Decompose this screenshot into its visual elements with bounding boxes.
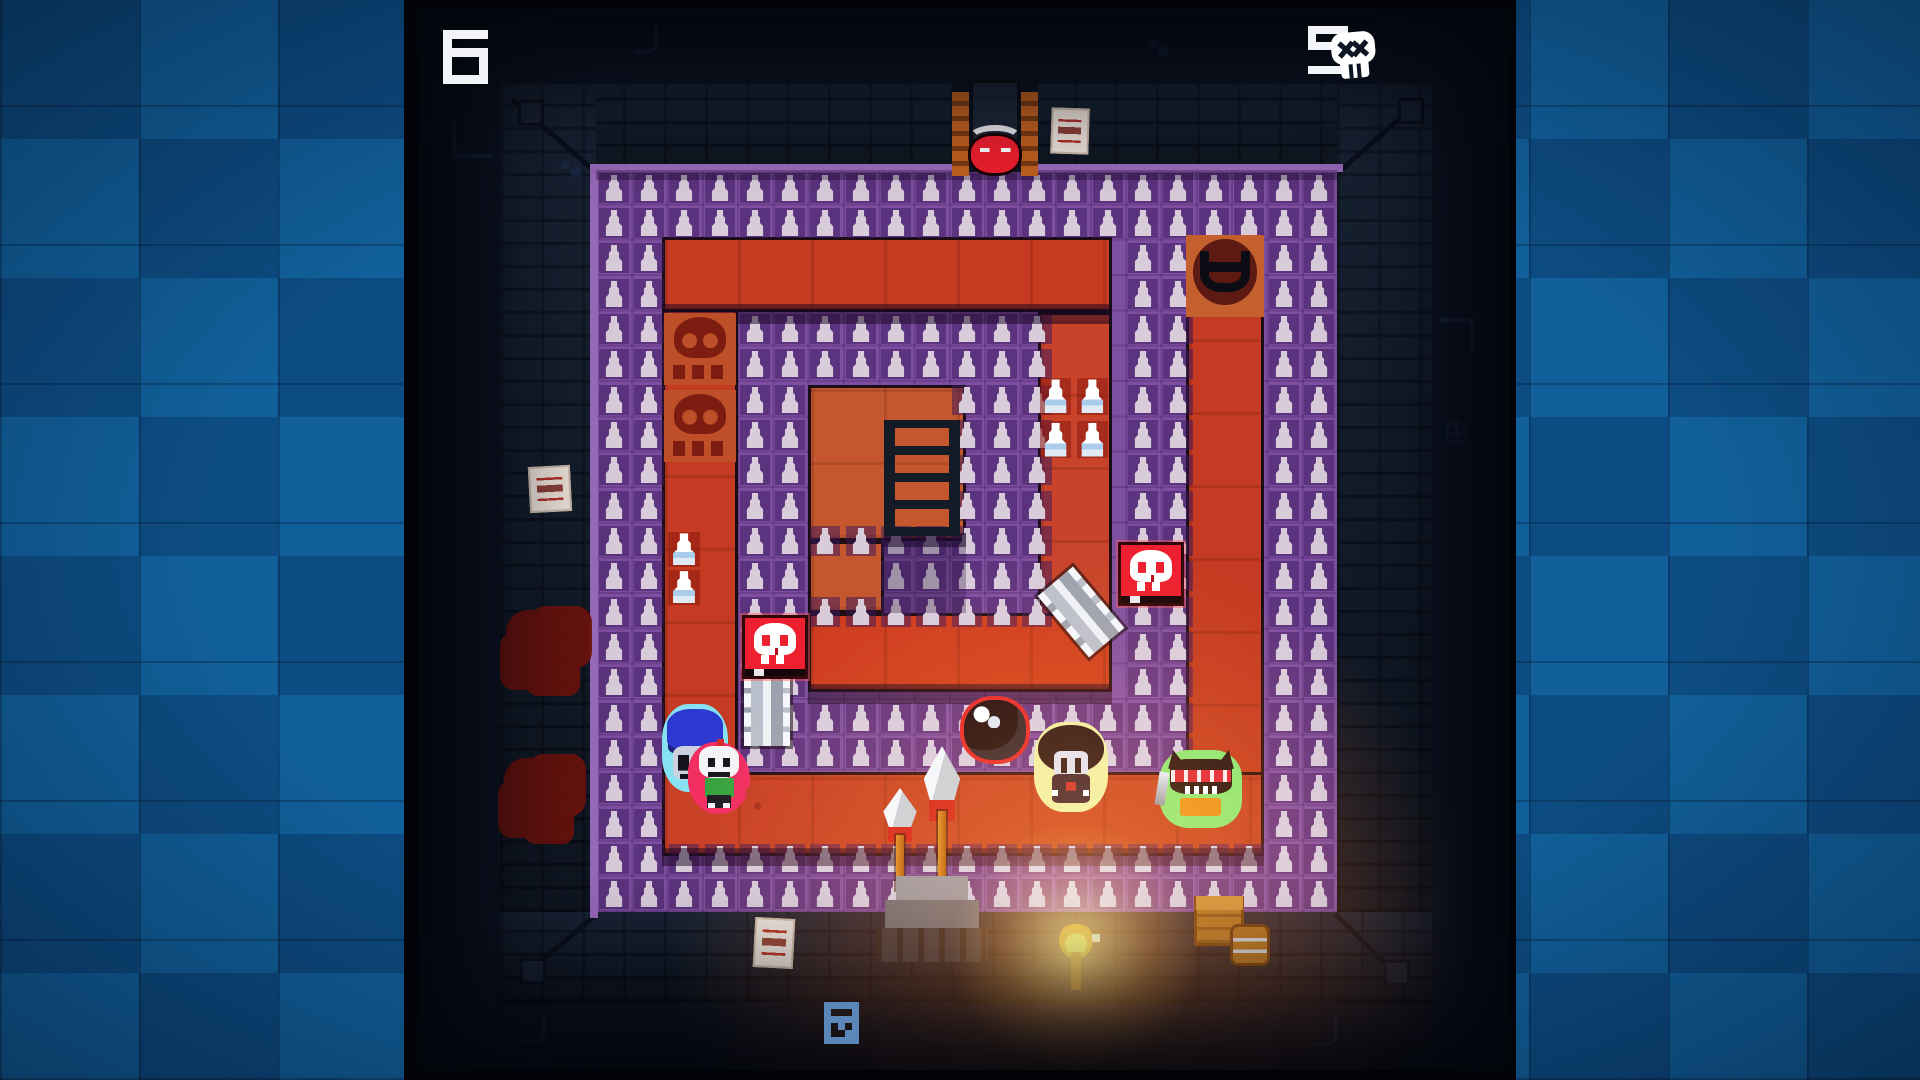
candle-pin [1022, 879, 1052, 909]
player-face [1054, 751, 1088, 776]
candle-pin [599, 879, 629, 909]
background-mark [522, 1014, 546, 1044]
candle-pin [1128, 420, 1158, 450]
skull-block-left [742, 615, 808, 679]
candle-pin [810, 173, 840, 203]
candle-pin [634, 632, 664, 662]
candle-pin [1093, 879, 1123, 909]
candle-pin [1269, 526, 1299, 556]
candle-pin [1269, 243, 1299, 273]
candle-pin [1269, 349, 1299, 379]
candle-pin [740, 173, 770, 203]
candle-pin [881, 314, 911, 344]
background-mark [558, 158, 582, 178]
candle-pin [599, 173, 629, 203]
candle-pin [599, 420, 629, 450]
candle-pin [599, 632, 629, 662]
candle-pin [634, 243, 664, 273]
cannon-turret [952, 80, 1038, 178]
candle-pin [775, 455, 805, 485]
skull-face [754, 623, 796, 655]
candle-pin [1163, 632, 1193, 662]
candle-pin [1304, 597, 1334, 627]
candle-pin [810, 526, 840, 556]
candle-pin [599, 279, 629, 309]
candle-pin [1304, 314, 1334, 344]
base-step [876, 928, 988, 962]
candle-pin [634, 314, 664, 344]
candle-pin [669, 844, 699, 874]
candle-pin [916, 173, 946, 203]
candle-pin [1022, 455, 1052, 485]
big-candle-pin [668, 532, 700, 567]
candle-pin [1163, 844, 1193, 874]
candle-pin [1057, 208, 1087, 238]
candle-pin [1304, 703, 1334, 733]
candle-pin [1304, 738, 1334, 768]
candle-pin [1128, 314, 1158, 344]
candle-pin [810, 314, 840, 344]
candle-pin [1093, 208, 1123, 238]
candle-pin [1128, 279, 1158, 309]
candle-pin [881, 738, 911, 768]
candle-pin [1269, 279, 1299, 309]
candle-pin [1163, 385, 1193, 415]
spearhead [918, 746, 966, 806]
candle-pin [705, 173, 735, 203]
candle-pin [599, 491, 629, 521]
candle-pair [664, 532, 704, 606]
player-body [1052, 774, 1090, 803]
blood-splat-2 [504, 758, 574, 832]
background-mark [1446, 420, 1470, 444]
bomb [960, 696, 1030, 764]
candle-pin [1304, 243, 1334, 273]
candle-pin [740, 385, 770, 415]
candle-pin [1093, 173, 1123, 203]
candle-pin [1093, 844, 1123, 874]
candle-pin [846, 208, 876, 238]
candle-pin [775, 208, 805, 238]
orange-shorts [1180, 798, 1221, 815]
candle-pin [881, 349, 911, 379]
candle-pin [846, 173, 876, 203]
enemy-pink-skeleton [688, 742, 750, 814]
background-mark [1146, 38, 1168, 56]
candle-pin [705, 844, 735, 874]
candle-pin [1128, 632, 1158, 662]
candle-pin [775, 526, 805, 556]
candle-pin [634, 385, 664, 415]
candle-pin [881, 597, 911, 627]
candle-pin [987, 208, 1017, 238]
candle-pin [810, 879, 840, 909]
candle-pin [775, 385, 805, 415]
candle-pin [1128, 491, 1158, 521]
spearhead [878, 788, 922, 831]
candle-pin [1128, 243, 1158, 273]
candle-pin [952, 314, 982, 344]
candle-pin [916, 703, 946, 733]
candle-pin [599, 208, 629, 238]
candle-pin [1057, 879, 1087, 909]
candle-pin [916, 208, 946, 238]
candle-pin [599, 703, 629, 733]
candle-pin [1269, 385, 1299, 415]
candle-pin [669, 879, 699, 909]
candle-pin [705, 879, 735, 909]
game-screenshot [0, 0, 1920, 1080]
candle-pin [846, 597, 876, 627]
background-mark [1314, 1016, 1338, 1046]
candle-pin [952, 597, 982, 627]
big-candle-pin [1077, 421, 1108, 458]
skull-carving-tiles [664, 313, 736, 463]
candle-pin [740, 526, 770, 556]
candle-pin [1269, 455, 1299, 485]
crate-lid [1196, 896, 1243, 910]
player-character [1034, 722, 1108, 812]
candle-pin [634, 455, 664, 485]
green-torso [705, 778, 734, 797]
candle-pin [1304, 844, 1334, 874]
candle-pin [634, 561, 664, 591]
candle-pin [1269, 491, 1299, 521]
candle-pin [740, 349, 770, 379]
candle-pin [775, 879, 805, 909]
corner-stone [1384, 960, 1410, 986]
candle-pin [1269, 314, 1299, 344]
torch [1056, 922, 1096, 990]
corner-stone [1398, 98, 1424, 124]
skull-icon [1322, 26, 1386, 90]
candle-pin [1057, 173, 1087, 203]
candle-pin [846, 314, 876, 344]
candle-pin [881, 561, 911, 591]
candle-pin [1304, 420, 1334, 450]
candle-quad [1040, 378, 1108, 458]
candle-pin [810, 349, 840, 379]
candle-pin [740, 561, 770, 591]
candle-pin [1304, 632, 1334, 662]
candle-pin [1304, 561, 1334, 591]
candle-pin [634, 173, 664, 203]
candle-pin [740, 491, 770, 521]
candle-pin [634, 208, 664, 238]
candle-pin [1163, 879, 1193, 909]
candle-pin [1199, 208, 1229, 238]
candle-pin [1304, 667, 1334, 697]
candle-pin [634, 491, 664, 521]
skull-carving [664, 390, 736, 462]
candle-pin [1128, 173, 1158, 203]
big-candle-pin [1040, 421, 1071, 458]
candle-pin [775, 349, 805, 379]
hud-kill-counter [1308, 26, 1508, 90]
candle-pin [669, 173, 699, 203]
candle-pin [1304, 173, 1334, 203]
candle-pin [1234, 844, 1264, 874]
candle-pin [952, 561, 982, 591]
candle-pin [634, 349, 664, 379]
candle-pin [1304, 208, 1334, 238]
candle-pin [775, 844, 805, 874]
candle-pin [1163, 667, 1193, 697]
legs [707, 795, 732, 808]
candle-pin [987, 597, 1017, 627]
candle-pin [1199, 173, 1229, 203]
big-candle-pin [1040, 378, 1071, 415]
candle-pin [1269, 773, 1299, 803]
note-top [1050, 107, 1090, 154]
candle-pin [846, 349, 876, 379]
corner-stone [520, 958, 546, 984]
candle-pin [1022, 314, 1052, 344]
candle-pin [846, 844, 876, 874]
candle-pin [1234, 208, 1264, 238]
candle-pin [599, 385, 629, 415]
crates [1194, 896, 1270, 966]
corner-stone [518, 100, 544, 126]
candle-pin [952, 349, 982, 379]
hatch-handle [1200, 251, 1250, 292]
candle-pin [987, 491, 1017, 521]
red-bandana [1171, 770, 1230, 782]
candle-pin [846, 703, 876, 733]
candle-pin [1163, 491, 1193, 521]
candle-pin [599, 844, 629, 874]
candle-pin [1163, 703, 1193, 733]
base-step [896, 876, 968, 902]
barrel [1230, 924, 1270, 966]
big-candle-pin [1077, 378, 1108, 415]
big-candle-pin [668, 570, 700, 605]
candle-pin [846, 879, 876, 909]
cannon-rail [1021, 92, 1038, 176]
candle-pin [1128, 844, 1158, 874]
candle-pin [1304, 773, 1334, 803]
candle-pin [740, 208, 770, 238]
skull-face [1130, 550, 1172, 582]
candle-pin [1163, 455, 1193, 485]
fang-grin [1185, 786, 1219, 794]
candle-pin [1128, 208, 1158, 238]
candle-pin [987, 420, 1017, 450]
candle-pin [1269, 879, 1299, 909]
spear-left [878, 788, 922, 890]
candle-pin [1269, 738, 1299, 768]
candle-pin [846, 738, 876, 768]
candle-pin [634, 667, 664, 697]
base-step [885, 900, 979, 929]
candle-pin [1269, 632, 1299, 662]
note-left [528, 465, 572, 513]
candle-pin [634, 809, 664, 839]
candle-pin [1022, 491, 1052, 521]
candle-pin [1128, 667, 1158, 697]
candle-pin [987, 561, 1017, 591]
candle-pin [740, 455, 770, 485]
candle-pin [740, 844, 770, 874]
blood-specks [744, 784, 774, 810]
candle-pin [987, 844, 1017, 874]
candle-pin [1057, 844, 1087, 874]
candle-pin [987, 385, 1017, 415]
candle-pin [987, 879, 1017, 909]
candle-pin [775, 491, 805, 521]
candle-pin [952, 208, 982, 238]
candle-pin [810, 208, 840, 238]
candle-pin [1269, 703, 1299, 733]
candle-pin [916, 597, 946, 627]
candle-pin [810, 844, 840, 874]
wall-left [500, 84, 596, 1004]
candle-pin [775, 561, 805, 591]
candle-pin [1304, 491, 1334, 521]
red-carpet [662, 237, 1112, 312]
candle-pin [1022, 208, 1052, 238]
blood-splat-1 [506, 610, 580, 684]
candle-pin [1128, 385, 1158, 415]
candle-pin [1128, 738, 1158, 768]
block-base-bar [745, 669, 805, 676]
candle-pin [1269, 809, 1299, 839]
candle-pin [599, 773, 629, 803]
cannon-red-face [968, 133, 1021, 176]
candle-pin [599, 243, 629, 273]
candle-pin [1163, 349, 1193, 379]
candle-pin [634, 526, 664, 556]
candle-pin [1022, 526, 1052, 556]
candle-pin [1304, 349, 1334, 379]
candle-pin [1128, 455, 1158, 485]
candle-pin [599, 738, 629, 768]
candle-pin [916, 314, 946, 344]
candle-pin [740, 879, 770, 909]
candle-pin [1234, 173, 1264, 203]
skull-head [699, 746, 739, 778]
candle-pin [810, 738, 840, 768]
candle-pin [1304, 809, 1334, 839]
candle-pin [1304, 385, 1334, 415]
candle-pin [916, 349, 946, 379]
candle-pin [599, 561, 629, 591]
candle-pin [1304, 279, 1334, 309]
candle-pin [1128, 703, 1158, 733]
floor-edge-trim [590, 164, 598, 918]
candle-pin [599, 526, 629, 556]
note-bottom [753, 917, 796, 969]
candle-pin [599, 455, 629, 485]
candle-pin [846, 526, 876, 556]
candle-pin [740, 314, 770, 344]
candle-pin [1128, 349, 1158, 379]
candle-pin [987, 349, 1017, 379]
candle-pin [881, 703, 911, 733]
candle-pin [1269, 420, 1299, 450]
candle-pin [1022, 844, 1052, 874]
candle-pin [1163, 420, 1193, 450]
skull-carving [664, 313, 736, 385]
candle-pin [1199, 844, 1229, 874]
candle-pin [634, 879, 664, 909]
candle-pin [1128, 879, 1158, 909]
candle-pin [1163, 173, 1193, 203]
candle-pin [599, 349, 629, 379]
background-mark [452, 118, 492, 158]
candle-pin [634, 844, 664, 874]
candle-pin [599, 667, 629, 697]
candle-pin [599, 597, 629, 627]
candle-pin [1163, 208, 1193, 238]
candle-pin [705, 208, 735, 238]
candle-pin [916, 561, 946, 591]
candle-pin [599, 809, 629, 839]
background-mark [634, 22, 658, 54]
candle-pin [810, 597, 840, 627]
candle-pin [634, 597, 664, 627]
candle-pin [1304, 879, 1334, 909]
torch-spark [1092, 934, 1100, 942]
ladder [884, 420, 960, 536]
wall-right [1337, 84, 1432, 1004]
candle-pin [634, 703, 664, 733]
candle-pin [634, 420, 664, 450]
candle-pin [634, 738, 664, 768]
candle-pin [987, 526, 1017, 556]
candle-pin [1163, 314, 1193, 344]
candle-pin [987, 314, 1017, 344]
candle-pin [1269, 561, 1299, 591]
spear-right [918, 746, 966, 888]
candle-pin [599, 314, 629, 344]
saw-blade-left [744, 674, 790, 746]
skull-block-right [1118, 542, 1184, 606]
candle-pin [1269, 173, 1299, 203]
candle-pin [669, 208, 699, 238]
candle-pin [634, 773, 664, 803]
candle-pin [775, 420, 805, 450]
game-viewport[interactable] [418, 8, 1510, 1070]
candle-pin [634, 279, 664, 309]
candle-pin [1269, 597, 1299, 627]
candle-pin [810, 703, 840, 733]
torch-stick [1071, 952, 1081, 990]
background-mark [1440, 318, 1474, 352]
block-base-bar [1121, 596, 1181, 603]
candle-pin [1269, 667, 1299, 697]
cannon-rail [952, 92, 969, 176]
exit-hatch [1186, 235, 1264, 317]
candle-pin [881, 173, 911, 203]
candle-pin [1269, 844, 1299, 874]
candle-pin [740, 420, 770, 450]
enemy-green-cat [1160, 750, 1242, 828]
candle-pin [1304, 455, 1334, 485]
candle-pin [987, 455, 1017, 485]
candle-pin [1022, 349, 1052, 379]
candle-pin [775, 173, 805, 203]
candle-pin [1269, 208, 1299, 238]
candle-pin [881, 208, 911, 238]
candle-pin [1304, 526, 1334, 556]
candle-pin [775, 314, 805, 344]
candle-pin [952, 385, 982, 415]
spear-launcher-base [876, 876, 988, 962]
